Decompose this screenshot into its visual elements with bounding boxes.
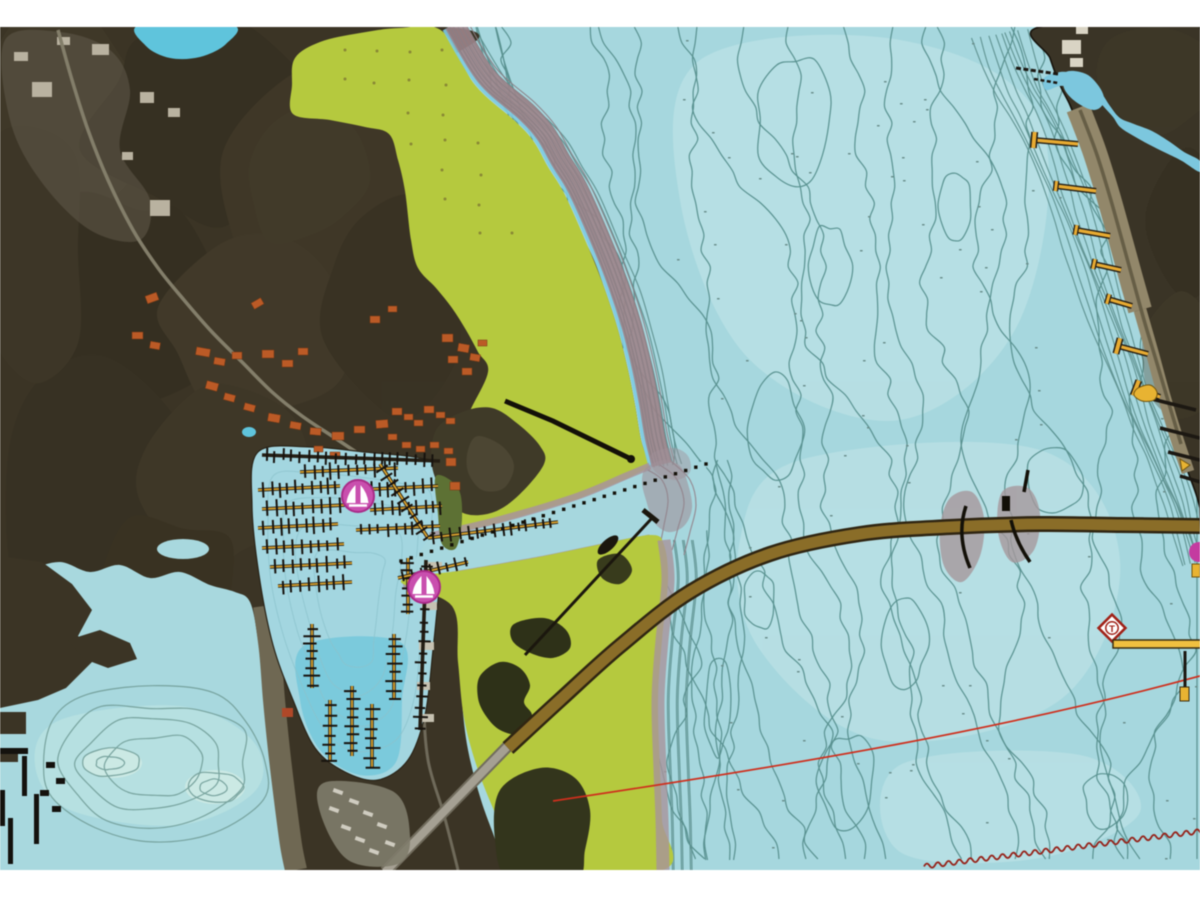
svg-text:T: T — [1109, 624, 1115, 635]
